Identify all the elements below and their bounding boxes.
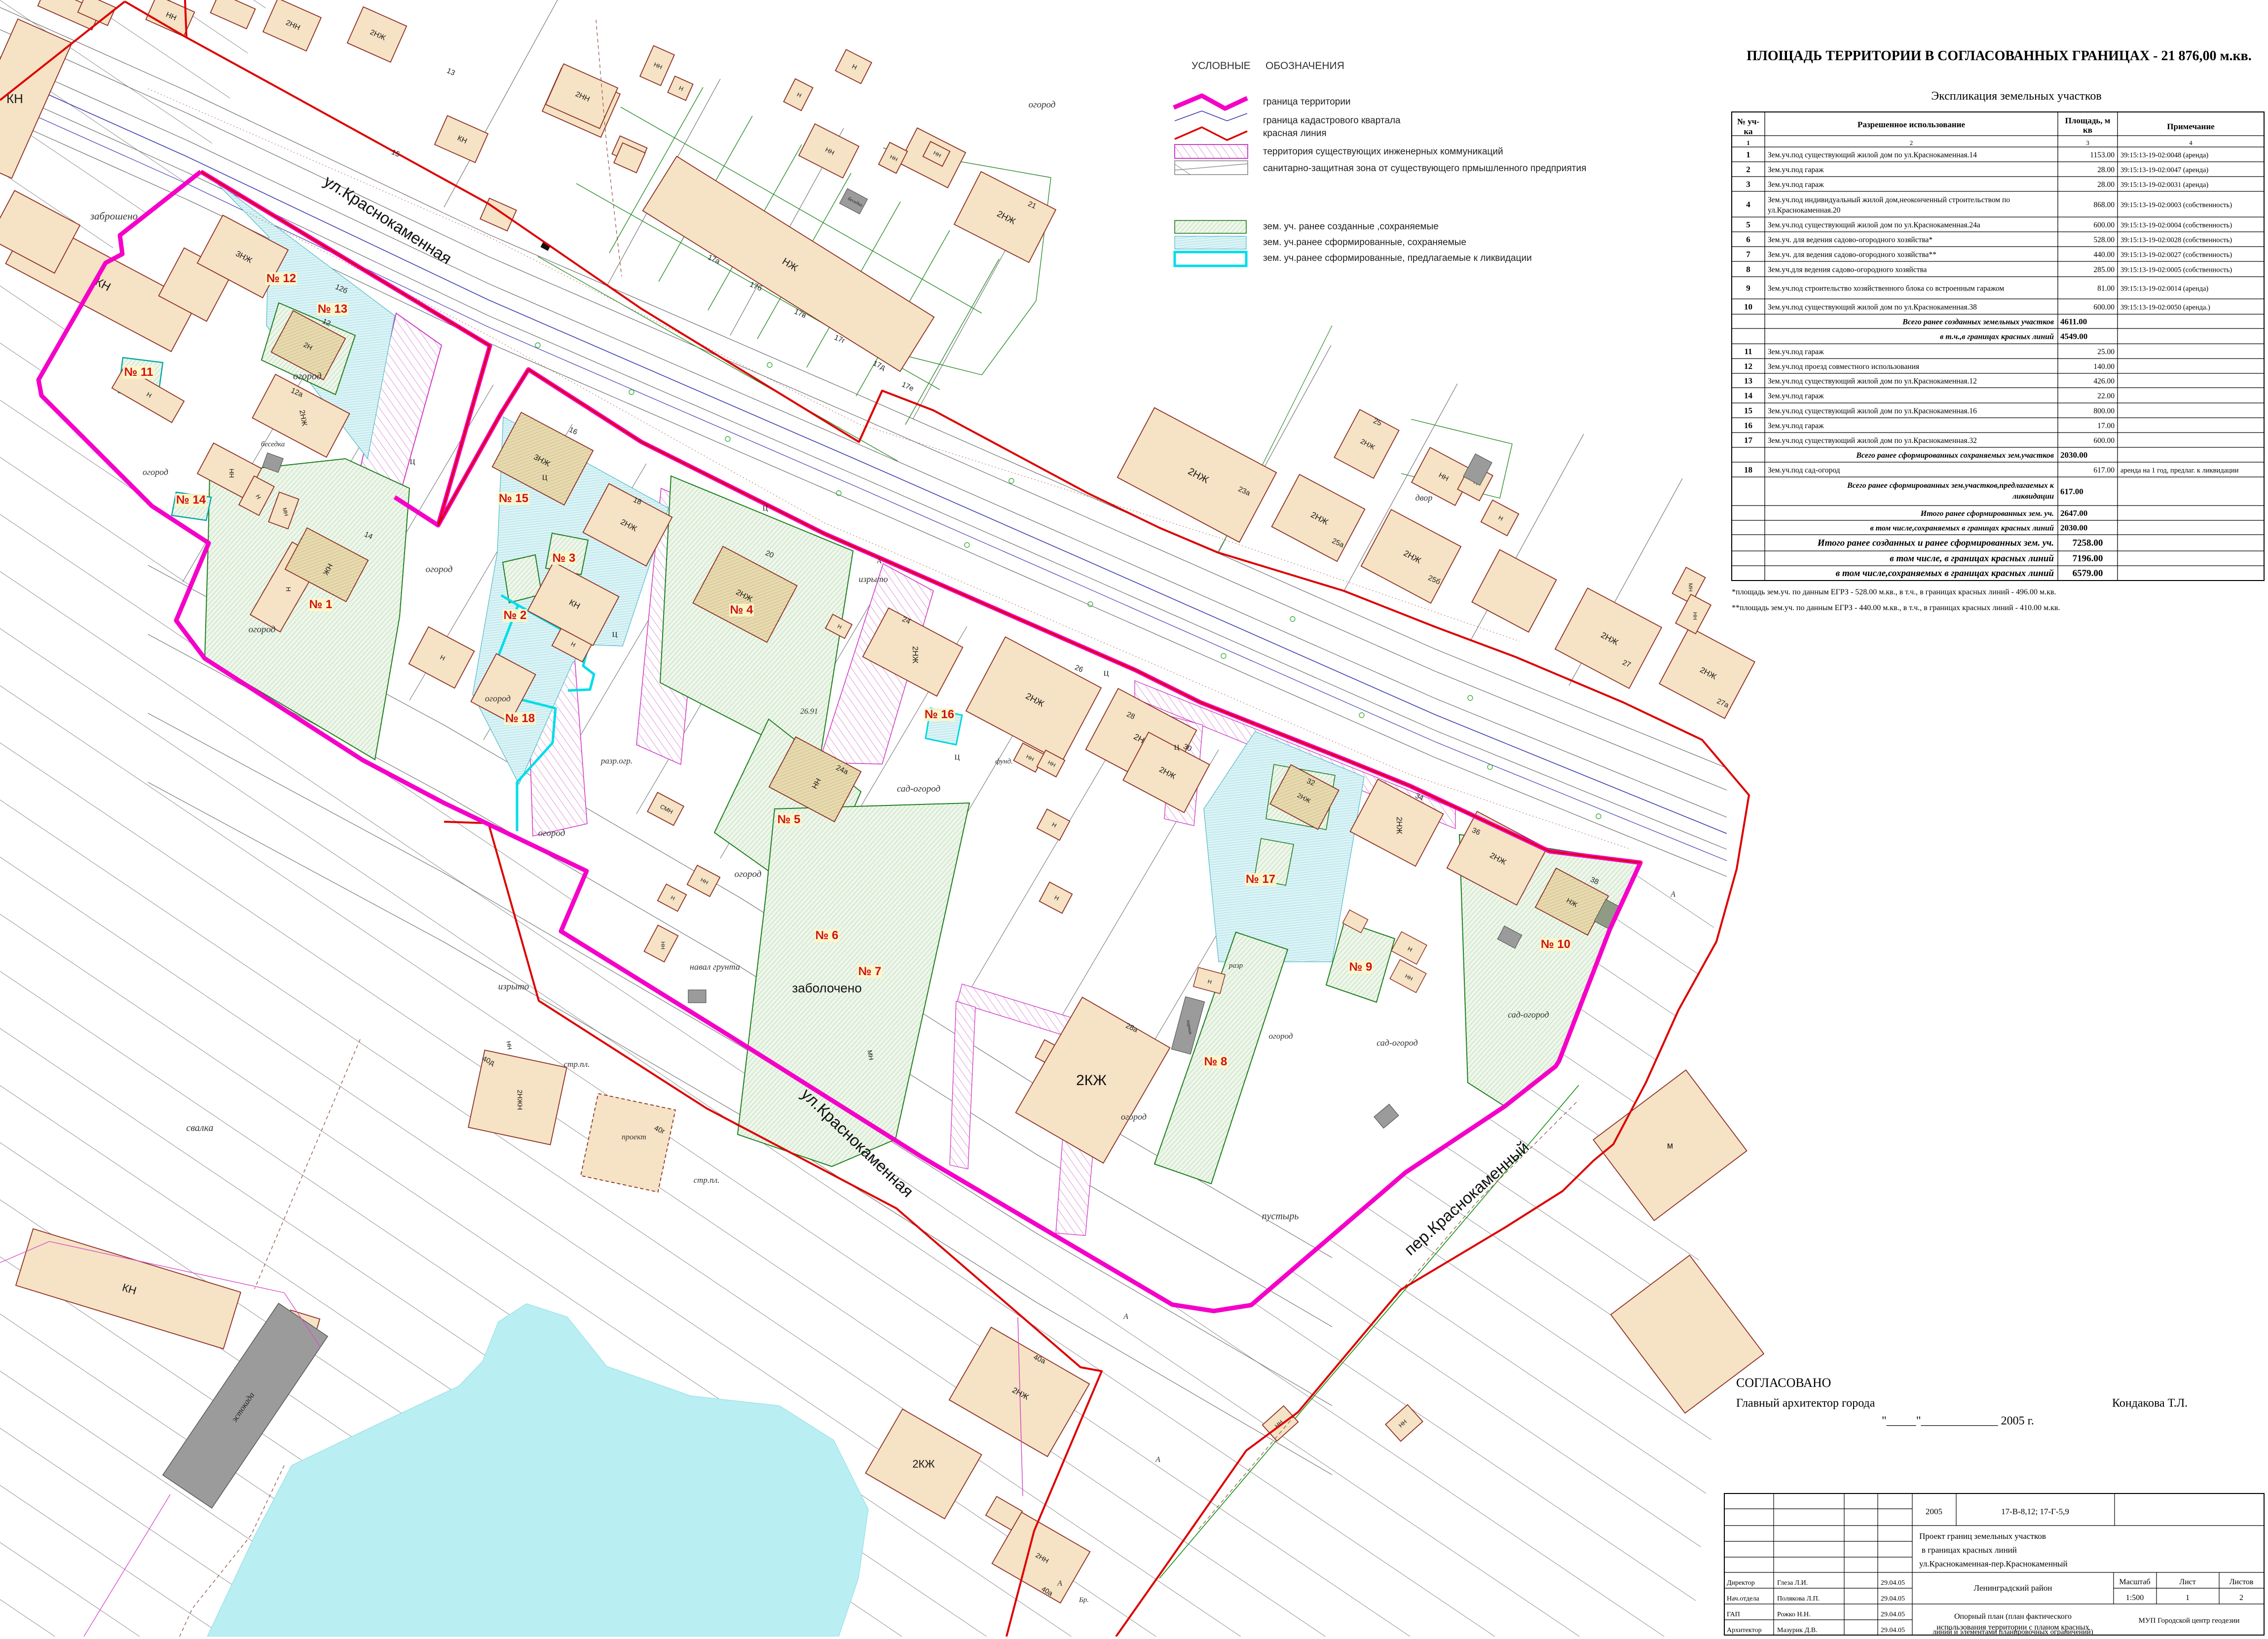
svg-text:1: 1 [2186,1594,2190,1602]
svg-text:7: 7 [1746,250,1750,259]
svg-text:2КЖ: 2КЖ [912,1458,935,1470]
svg-text:Зем.уч.под существующий жилой: Зем.уч.под существующий жилой дом по ул.… [1768,151,1977,159]
svg-text:29.04.05: 29.04.05 [1881,1579,1905,1587]
svg-text:Лист: Лист [2179,1578,2196,1586]
svg-text:28.00: 28.00 [2097,181,2115,189]
svg-text:4611.00: 4611.00 [2060,317,2087,327]
svg-text:528.00: 528.00 [2093,236,2115,244]
svg-text:огород: огород [143,467,168,477]
svg-text:Ц: Ц [410,458,415,466]
svg-text:территория существующих инжен: территория существующих инженерных комму… [1263,146,1503,157]
svg-text:№ 3: № 3 [553,551,576,565]
svg-text:600.00: 600.00 [2093,303,2115,312]
svg-text:граница территории: граница территории [1263,97,1351,107]
svg-text:Всего ранее сформированных з: Всего ранее сформированных зем.участков,… [1847,481,2054,490]
svg-text:140.00: 140.00 [2093,363,2115,371]
svg-text:4: 4 [2189,139,2193,146]
svg-text:заброшено: заброшено [90,210,138,222]
svg-text:426.00: 426.00 [2093,377,2115,386]
svg-text:Зем.уч.под сад-огород: Зем.уч.под сад-огород [1768,466,1840,474]
svg-text:Зем.уч. для ведения садово-ого: Зем.уч. для ведения садово-огородного хо… [1768,236,1933,244]
svg-text:сад-огород: сад-огород [1376,1038,1418,1048]
svg-text:600.00: 600.00 [2093,437,2115,445]
svg-text:39:15:13-19-02:0027 (собств: 39:15:13-19-02:0027 (собственность) [2120,251,2232,259]
svg-text:№ 18: № 18 [505,712,535,725]
svg-text:№ 1: № 1 [309,598,333,611]
svg-text:3: 3 [1746,180,1750,189]
svg-text:39:15:13-19-02:0050 (аренда: 39:15:13-19-02:0050 (аренда.) [2120,304,2210,312]
svg-text:сад-огород: сад-огород [1508,1010,1549,1020]
svg-text:зем. уч. ранее созданные ,сохр: зем. уч. ранее созданные ,сохраняемые [1263,221,1439,232]
svg-text:Кондакова Т.Л.: Кондакова Т.Л. [2112,1397,2188,1410]
svg-text:навал грунта: навал грунта [690,962,740,972]
svg-text:Зем.уч.под существующий жилой: Зем.уч.под существующий жилой дом по ул.… [1768,221,1980,229]
svg-text:617.00: 617.00 [2060,487,2083,496]
svg-text:ОБОЗНАЧЕНИЯ: ОБОЗНАЧЕНИЯ [1265,60,1344,72]
svg-text:Всего ранее сформированных со: Всего ранее сформированных сохраняемых з… [1856,451,2054,460]
svg-text:разр: разр [1228,962,1243,970]
svg-text:огород: огород [485,693,511,703]
svg-text:Зем.уч.под строительство хозяй: Зем.уч.под строительство хозяйственного … [1768,285,2004,293]
svg-text:7196.00: 7196.00 [2073,553,2103,564]
svg-text:Полякова Л.П.: Полякова Л.П. [1777,1595,1820,1603]
svg-text:огород: огород [1268,1031,1293,1041]
svg-text:№ 9: № 9 [1349,960,1373,974]
svg-text:Зем.уч.под гараж: Зем.уч.под гараж [1768,181,1824,189]
svg-text:5: 5 [1746,220,1750,229]
svg-text:№ 10: № 10 [1541,938,1570,951]
svg-text:№ 6: № 6 [816,929,839,942]
svg-text:"_____"_____________ 2005 г.: "_____"_____________ 2005 г. [1882,1415,2034,1427]
svg-text:39:15:13-19-02:0005 (собств: 39:15:13-19-02:0005 (собственность) [2120,266,2232,274]
svg-text:14: 14 [1744,391,1753,401]
svg-text:**площадь зем.уч. по данным ЕГ: **площадь зем.уч. по данным ЕГРЗ - 440.0… [1732,604,2060,612]
svg-text:№ уч-: № уч- [1737,117,1759,126]
svg-text:29.04.05: 29.04.05 [1881,1611,1905,1618]
svg-text:зем. уч.ранее сформированные,: зем. уч.ранее сформированные, сохраняемы… [1263,237,1466,248]
svg-text:29.04.05: 29.04.05 [1881,1595,1905,1603]
svg-text:6579.00: 6579.00 [2073,568,2103,579]
svg-text:Итого ранее созданных и ранее: Итого ранее созданных и ранее сформирова… [1817,538,2054,548]
svg-text:2НЖ: 2НЖ [1395,817,1403,834]
svg-text:2НЖ: 2НЖ [911,646,919,663]
svg-text:39:15:13-19-02:0003 (собс: 39:15:13-19-02:0003 (собственность) [2120,201,2232,209]
svg-text:сад-огород: сад-огород [897,784,940,794]
svg-text:Ц: Ц [542,474,548,482]
svg-text:440.00: 440.00 [2093,251,2115,259]
svg-text:8: 8 [1746,265,1750,274]
svg-text:2005: 2005 [1926,1507,1942,1516]
svg-text:6: 6 [1746,235,1750,244]
svg-text:13: 13 [1744,376,1752,386]
svg-text:№ 7: № 7 [858,965,882,978]
svg-text:Ц: Ц [955,754,960,762]
svg-text:Ц: Ц [1104,670,1109,678]
svg-text:Зем.уч.для ведения садово-огор: Зем.уч.для ведения садово-огородного хоз… [1768,266,1927,274]
svg-text:Архитектор: Архитектор [1727,1627,1762,1634]
svg-text:огород: огород [426,564,453,575]
svg-text:17.00: 17.00 [2097,422,2115,430]
svg-text:868.00: 868.00 [2093,201,2115,209]
svg-text:№ 8: № 8 [1204,1055,1227,1068]
svg-text:НН: НН [1692,612,1698,620]
svg-text:2КЖ: 2КЖ [1076,1072,1107,1089]
svg-text:*площадь зем.уч. по данным ЕГР: *площадь зем.уч. по данным ЕГРЗ - 528.00… [1732,588,2056,596]
svg-text:А: А [1057,1579,1062,1588]
svg-text:Зем.уч.под существующий жилой: Зем.уч.под существующий жилой дом по ул.… [1768,407,1977,415]
svg-text:№ 15: № 15 [499,492,528,505]
svg-text:39:15:13-19-02:0014 (арен: 39:15:13-19-02:0014 (аренда) [2120,285,2208,293]
svg-text:Бр.: Бр. [1078,1596,1089,1604]
svg-text:39:15:13-19-02:0028 (собств: 39:15:13-19-02:0028 (собственность) [2120,236,2232,244]
svg-text:11: 11 [1744,347,1752,356]
svg-text:Зем.уч.под гараж: Зем.уч.под гараж [1768,348,1824,356]
svg-text:фунд.: фунд. [995,758,1013,765]
svg-text:граница кадастрового квартала: граница кадастрового квартала [1263,115,1401,126]
svg-text:ликвидации: ликвидации [2012,492,2054,501]
svg-text:285.00: 285.00 [2093,266,2115,274]
svg-text:НН: НН [505,1041,514,1051]
svg-text:Всего ранее созданных земель: Всего ранее созданных земельных участков [1902,318,2054,327]
svg-text:Зем.уч.под гараж: Зем.уч.под гараж [1768,166,1824,174]
svg-text:Зем.уч.под гараж: Зем.уч.под гараж [1768,422,1824,430]
svg-text:Рожко Н.Н.: Рожко Н.Н. [1777,1611,1811,1618]
svg-text:Мазурик Д.В.: Мазурик Д.В. [1777,1627,1818,1634]
svg-text:17-В-8,12; 17-Г-5,9: 17-В-8,12; 17-Г-5,9 [2001,1507,2069,1516]
svg-text:УСЛОВНЫЕ: УСЛОВНЫЕ [1191,60,1251,72]
svg-text:Площадь, м: Площадь, м [2065,116,2111,125]
svg-text:Экспликация земельных участков: Экспликация земельных участков [1931,90,2101,103]
svg-text:СОГЛАСОВАНО: СОГЛАСОВАНО [1736,1376,1831,1390]
svg-text:огород: огород [1029,100,1056,110]
svg-text:800.00: 800.00 [2093,407,2115,415]
svg-text:18: 18 [1744,465,1752,474]
svg-text:15: 15 [1744,406,1752,415]
svg-text:Нач.отдела: Нач.отдела [1727,1595,1759,1603]
svg-text:26.91: 26.91 [800,707,818,716]
svg-text:красная линия: красная линия [1263,128,1327,139]
svg-text:Ц: Ц [612,631,618,639]
svg-text:1153.00: 1153.00 [2090,151,2115,159]
svg-text:стр.пл.: стр.пл. [694,1175,720,1185]
svg-text:№ 17: № 17 [1246,873,1275,886]
svg-text:9: 9 [1746,284,1750,293]
svg-text:м: м [1667,1140,1673,1150]
svg-text:заболочено: заболочено [792,981,861,995]
svg-text:А: А [1123,1312,1128,1321]
svg-text:2647.00: 2647.00 [2060,509,2087,518]
svg-text:3: 3 [2086,139,2089,146]
svg-text:Примечание: Примечание [2167,122,2215,131]
svg-text:№ 16: № 16 [925,708,954,721]
svg-text:свалка: свалка [186,1123,214,1133]
svg-text:12: 12 [1744,362,1752,371]
svg-text:ГАП: ГАП [1727,1611,1740,1618]
svg-text:разр.огр.: разр.огр. [600,756,632,765]
svg-text:кв: кв [2083,125,2092,135]
svg-text:огород: огород [1121,1112,1147,1122]
svg-text:А: А [877,557,882,565]
svg-text:№ 13: № 13 [318,302,347,316]
svg-text:в том числе,сохраняемых в гран: в том числе,сохраняемых в границах красн… [1836,568,2054,579]
svg-text:МН: МН [1687,583,1693,591]
svg-text:огород: огород [293,371,322,382]
svg-text:2: 2 [1746,165,1750,174]
svg-text:Ц: Ц [1174,744,1180,752]
svg-text:НН: НН [660,942,666,949]
svg-text:А: А [1155,1456,1160,1464]
svg-text:изрыто: изрыто [498,982,529,992]
svg-text:Зем.уч.под индивидуальный жил: Зем.уч.под индивидуальный жилой дом,неок… [1768,196,2010,204]
svg-text:ул.Краснокаменная-пер.Краснока: ул.Краснокаменная-пер.Краснокаменный [1919,1559,2068,1568]
svg-text:22.00: 22.00 [2097,392,2115,401]
svg-text:39:15:13-19-02:0048 (арен: 39:15:13-19-02:0048 (аренда) [2120,151,2208,159]
svg-text:Листов: Листов [2230,1578,2254,1586]
svg-text:Зем.уч.под проезд совместного: Зем.уч.под проезд совместного использова… [1768,363,1919,371]
svg-text:№ 2: № 2 [504,609,527,622]
svg-text:7258.00: 7258.00 [2073,538,2103,548]
svg-text:29.04.05: 29.04.05 [1881,1627,1905,1634]
svg-text:Зем.уч.под существующий жилой: Зем.уч.под существующий жилой дом по ул.… [1768,303,1977,312]
svg-text:проект: проект [622,1133,646,1141]
svg-text:А: А [1670,890,1675,899]
svg-text:Проект границ земельных участк: Проект границ земельных участков [1919,1531,2046,1541]
svg-text:НН: НН [228,469,235,478]
svg-text:в т.ч.,в границах красных лини: в т.ч.,в границах красных линий [1940,333,2054,341]
svg-text:МУП Городской центр геодезии: МУП Городской центр геодезии [2139,1617,2240,1625]
svg-text:1:500: 1:500 [2126,1594,2144,1602]
svg-text:ул.Краснокаменная.20: ул.Краснокаменная.20 [1768,206,1841,215]
svg-text:16: 16 [1744,421,1752,430]
svg-text:пустырь: пустырь [1262,1211,1299,1222]
svg-text:Зем.уч.под существующий жилой: Зем.уч.под существующий жилой дом по ул.… [1768,377,1977,386]
svg-text:Итого ранее сформированных зем: Итого ранее сформированных зем. уч. [1920,510,2054,518]
svg-text:огород: огород [538,828,565,838]
svg-text:аренда на 1 год, предлаг. к ли: аренда на 1 год, предлаг. к ликвидации [2120,467,2239,474]
svg-text:№ 11: № 11 [124,365,153,379]
svg-text:39:15:13-19-02:0031 (аренда: 39:15:13-19-02:0031 (аренда) [2120,181,2208,189]
svg-text:617.00: 617.00 [2093,466,2115,474]
svg-text:Ленинградский район: Ленинградский район [1974,1583,2052,1593]
svg-text:санитарно-защитная зона от сущ: санитарно-защитная зона от существующего… [1263,163,1586,174]
svg-text:600.00: 600.00 [2093,221,2115,229]
svg-text:зем. уч.ранее сформированные,: зем. уч.ранее сформированные, предлагаем… [1263,253,1532,263]
svg-text:огород: огород [249,624,276,635]
svg-text:4549.00: 4549.00 [2060,332,2087,341]
svg-text:Глеза Л.И.: Глеза Л.И. [1777,1579,1808,1587]
svg-text:2030.00: 2030.00 [2060,450,2087,460]
svg-text:1: 1 [1747,139,1750,146]
svg-text:Директор: Директор [1727,1579,1755,1587]
svg-text:2030.00: 2030.00 [2060,523,2087,533]
svg-text:огород: огород [735,869,762,879]
svg-text:в границах красных линий: в границах красных линий [1922,1545,2017,1555]
svg-text:изрыто: изрыто [858,574,888,584]
svg-text:25.00: 25.00 [2097,348,2115,356]
svg-text:в том числе, в границах красны: в том числе, в границах красных линий [1890,553,2054,564]
svg-text:Опорный план (план фактическог: Опорный план (план фактического [1954,1612,2072,1621]
svg-text:28.00: 28.00 [2097,166,2115,174]
svg-text:№ 5: № 5 [778,813,801,826]
svg-text:Разрешенное использование: Разрешенное использование [1858,120,1966,129]
svg-text:двор: двор [1415,493,1433,503]
svg-text:10: 10 [1744,302,1752,312]
svg-text:линий и элементами планировочн: линий и элементами планировочных огранич… [1933,1628,2093,1636]
svg-text:ПЛОЩАДЬ ТЕРРИТОРИИ В СОГЛАСОВА: ПЛОЩАДЬ ТЕРРИТОРИИ В СОГЛАСОВАННЫХ ГРАНИ… [1747,48,2252,64]
svg-text:№ 4: № 4 [730,603,753,617]
svg-text:39:15:13-19-02:0004 (собств: 39:15:13-19-02:0004 (собственность) [2120,221,2232,229]
svg-text:2: 2 [1910,139,1913,146]
svg-text:Зем.уч.под гараж: Зем.уч.под гараж [1768,392,1824,401]
svg-text:№ 12: № 12 [266,272,296,285]
svg-text:39:15:13-19-02:0047 (аренда: 39:15:13-19-02:0047 (аренда) [2120,166,2208,174]
svg-text:Масштаб: Масштаб [2119,1578,2150,1586]
svg-text:4: 4 [1746,200,1750,209]
svg-text:Зем.уч.под существующий жилой: Зем.уч.под существующий жилой дом по ул.… [1768,437,1977,445]
svg-text:№ 14: № 14 [176,493,206,507]
svg-text:2: 2 [2239,1594,2243,1602]
svg-text:Главный архитектор города: Главный архитектор города [1736,1397,1875,1410]
svg-text:Ц: Ц [763,505,768,512]
svg-text:ка: ка [1744,127,1753,136]
svg-text:2НЖН: 2НЖН [516,1090,524,1110]
svg-text:Зем.уч. для ведения садово-ого: Зем.уч. для ведения садово-огородного хо… [1768,251,1936,259]
svg-text:1: 1 [1746,150,1750,159]
svg-text:17: 17 [1744,436,1753,445]
svg-text:в том числе,сохраняемых в гран: в том числе,сохраняемых в границах красн… [1870,524,2054,533]
svg-text:Н: Н [285,587,292,591]
svg-text:беседка: беседка [261,440,285,448]
svg-text:81.00: 81.00 [2097,285,2115,293]
svg-text:стр.пл.: стр.пл. [564,1059,590,1069]
